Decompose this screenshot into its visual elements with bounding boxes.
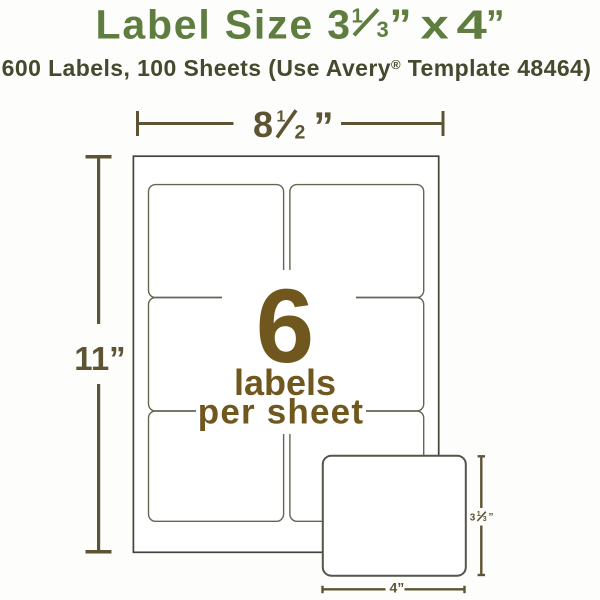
svg-text:4”: 4” <box>390 579 405 595</box>
svg-text:”: ” <box>390 1 412 50</box>
svg-text:8: 8 <box>253 104 273 145</box>
svg-text:1: 1 <box>277 109 286 126</box>
svg-text:3: 3 <box>483 516 487 523</box>
svg-text:”: ” <box>489 512 494 523</box>
svg-text:4: 4 <box>457 2 488 48</box>
svg-text:1: 1 <box>352 5 363 28</box>
svg-text:Label Size 3: Label Size 3 <box>96 1 352 47</box>
svg-text:”: ” <box>486 3 505 44</box>
svg-text:x: x <box>421 1 450 47</box>
svg-text:600 Labels, 100 Sheets (Use Av: 600 Labels, 100 Sheets (Use Avery® Templ… <box>2 55 592 81</box>
svg-text:2: 2 <box>295 122 306 144</box>
svg-text:per sheet: per sheet <box>198 393 364 432</box>
svg-text:”: ” <box>314 105 334 149</box>
svg-text:11”: 11” <box>74 340 125 377</box>
svg-text:3: 3 <box>377 17 389 42</box>
svg-text:3: 3 <box>470 513 476 524</box>
